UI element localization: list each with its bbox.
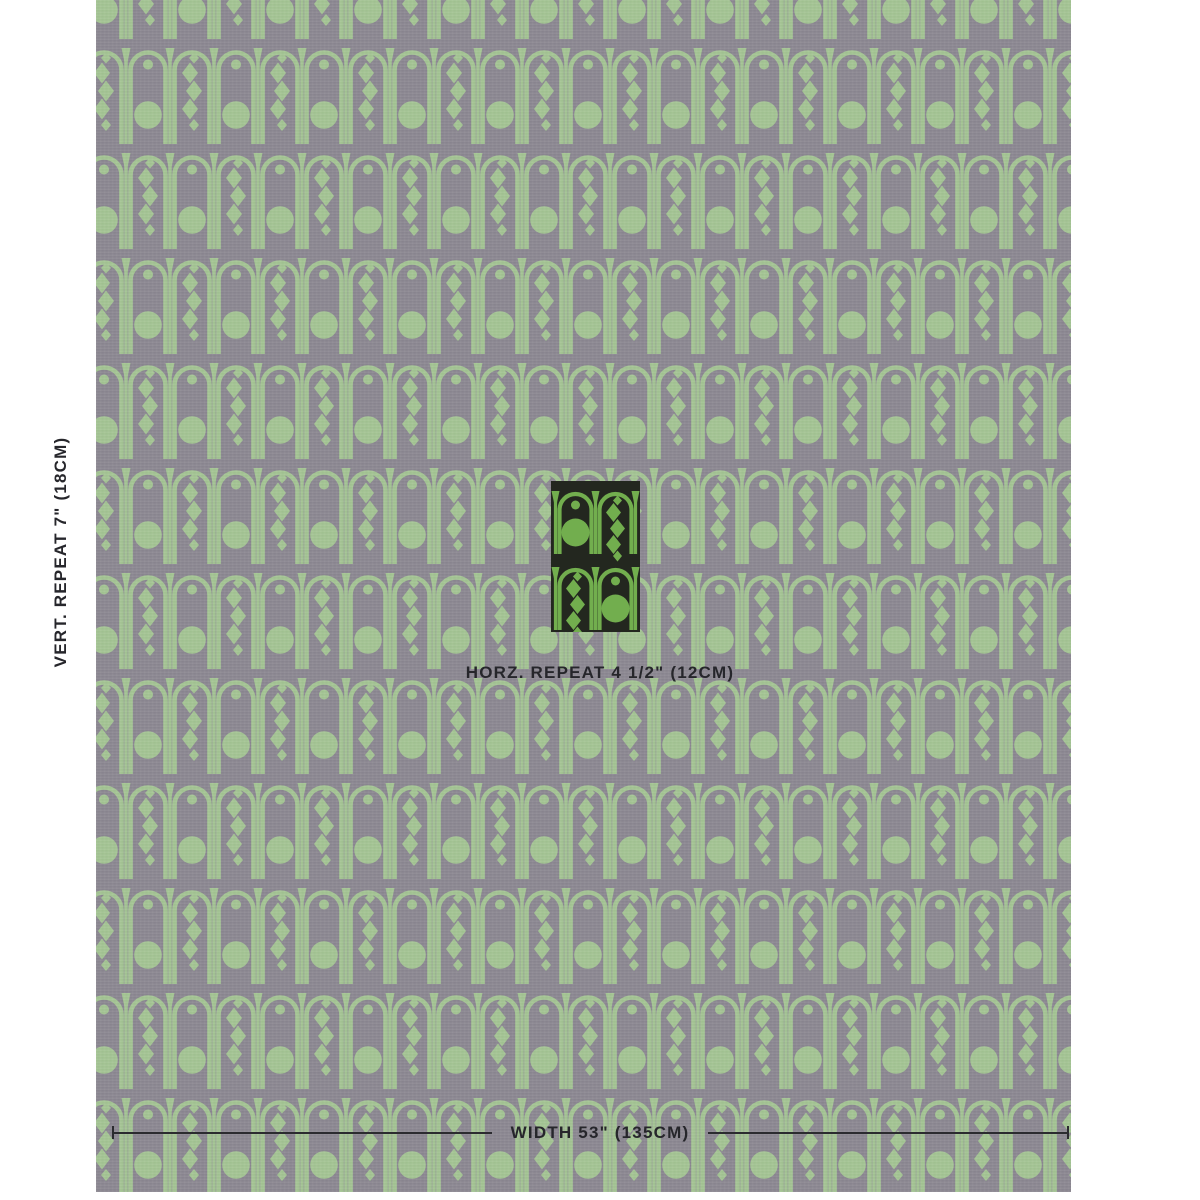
vertical-repeat-label: VERT. REPEAT 7" (18CM) <box>51 437 71 668</box>
horizontal-repeat-label: HORZ. REPEAT 4 1/2" (12CM) <box>466 663 735 683</box>
width-dimension-tick-right <box>1067 1126 1069 1139</box>
width-label: WIDTH 53" (135CM) <box>511 1123 690 1143</box>
width-dimension-line-left <box>112 1132 492 1134</box>
width-dimension-line-right <box>708 1132 1068 1134</box>
product-sheet: VERT. REPEAT 7" (18CM) HORZ. REPEAT 4 1/… <box>0 0 1200 1200</box>
repeat-swatch <box>551 481 640 632</box>
width-dimension-tick-left <box>112 1126 114 1139</box>
repeat-swatch-svg <box>551 481 640 632</box>
